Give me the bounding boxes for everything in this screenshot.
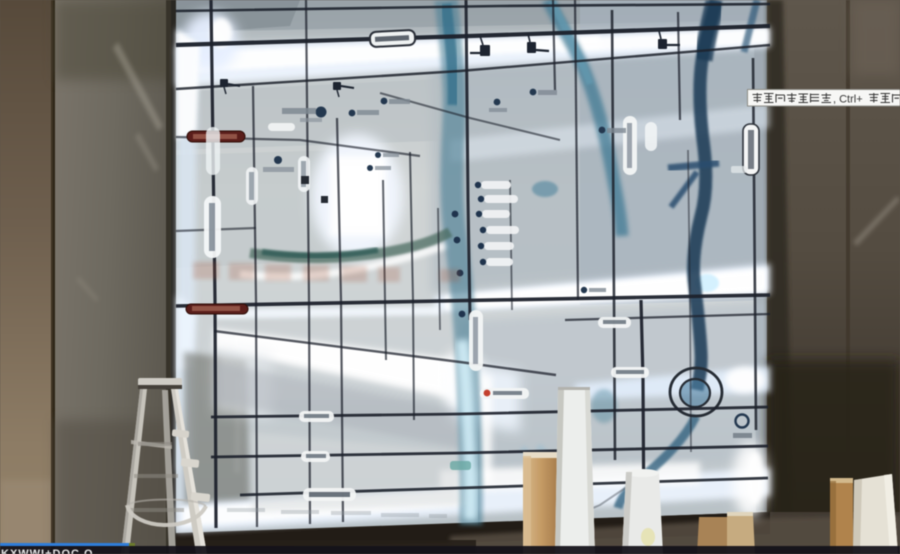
- svg-text:, Ctrl+: , Ctrl+: [833, 94, 863, 106]
- svg-text:KXWWI+DOC Q: KXWWI+DOC Q: [1, 548, 94, 554]
